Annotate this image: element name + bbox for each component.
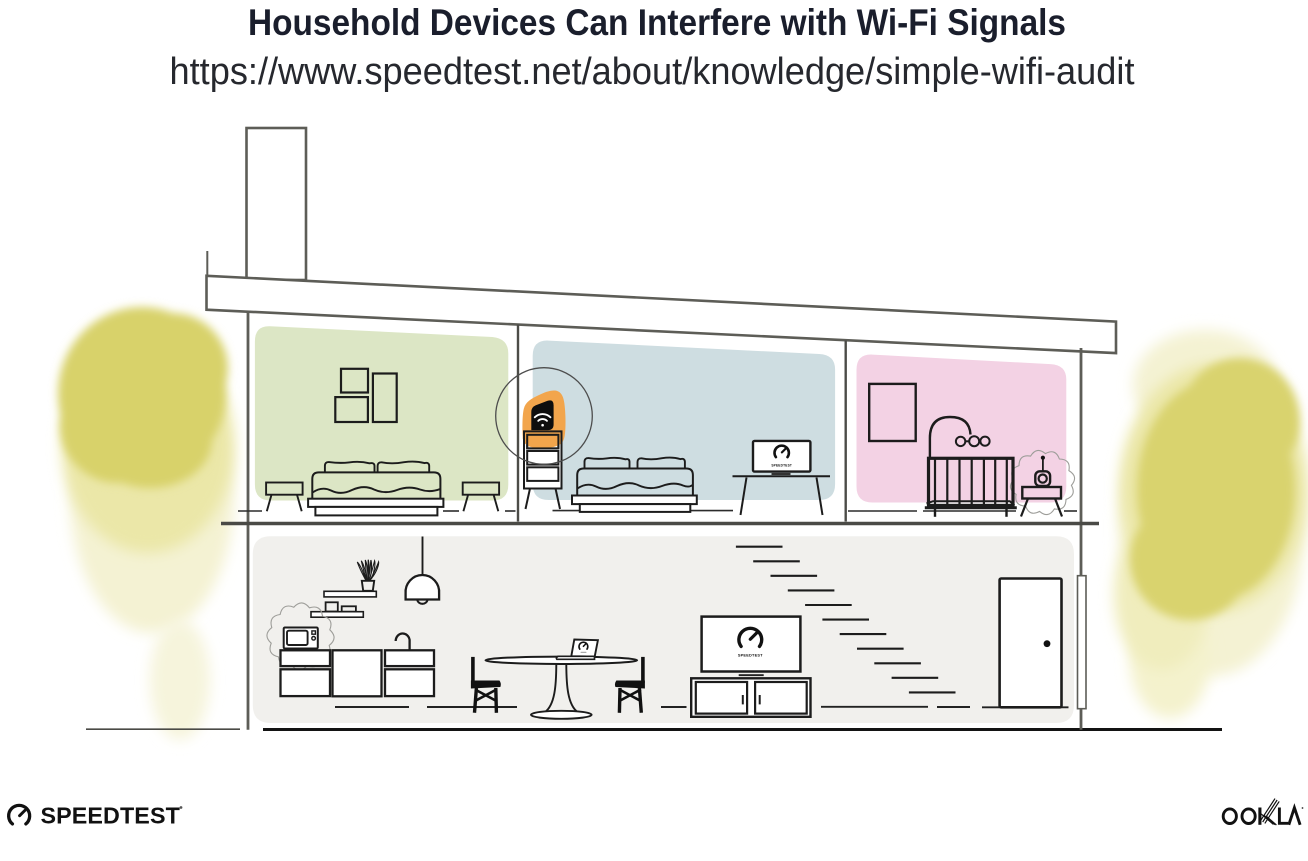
svg-text:SPEEDTEST: SPEEDTEST — [738, 653, 763, 658]
svg-text:Household Devices Can Interfer: Household Devices Can Interfere with Wi-… — [248, 2, 1066, 43]
svg-text:SPEEDTEST: SPEEDTEST — [771, 463, 792, 467]
svg-text:https://www.speedtest.net/abou: https://www.speedtest.net/about/knowledg… — [170, 51, 1135, 93]
svg-text:SPEEDTEST: SPEEDTEST — [41, 803, 180, 829]
